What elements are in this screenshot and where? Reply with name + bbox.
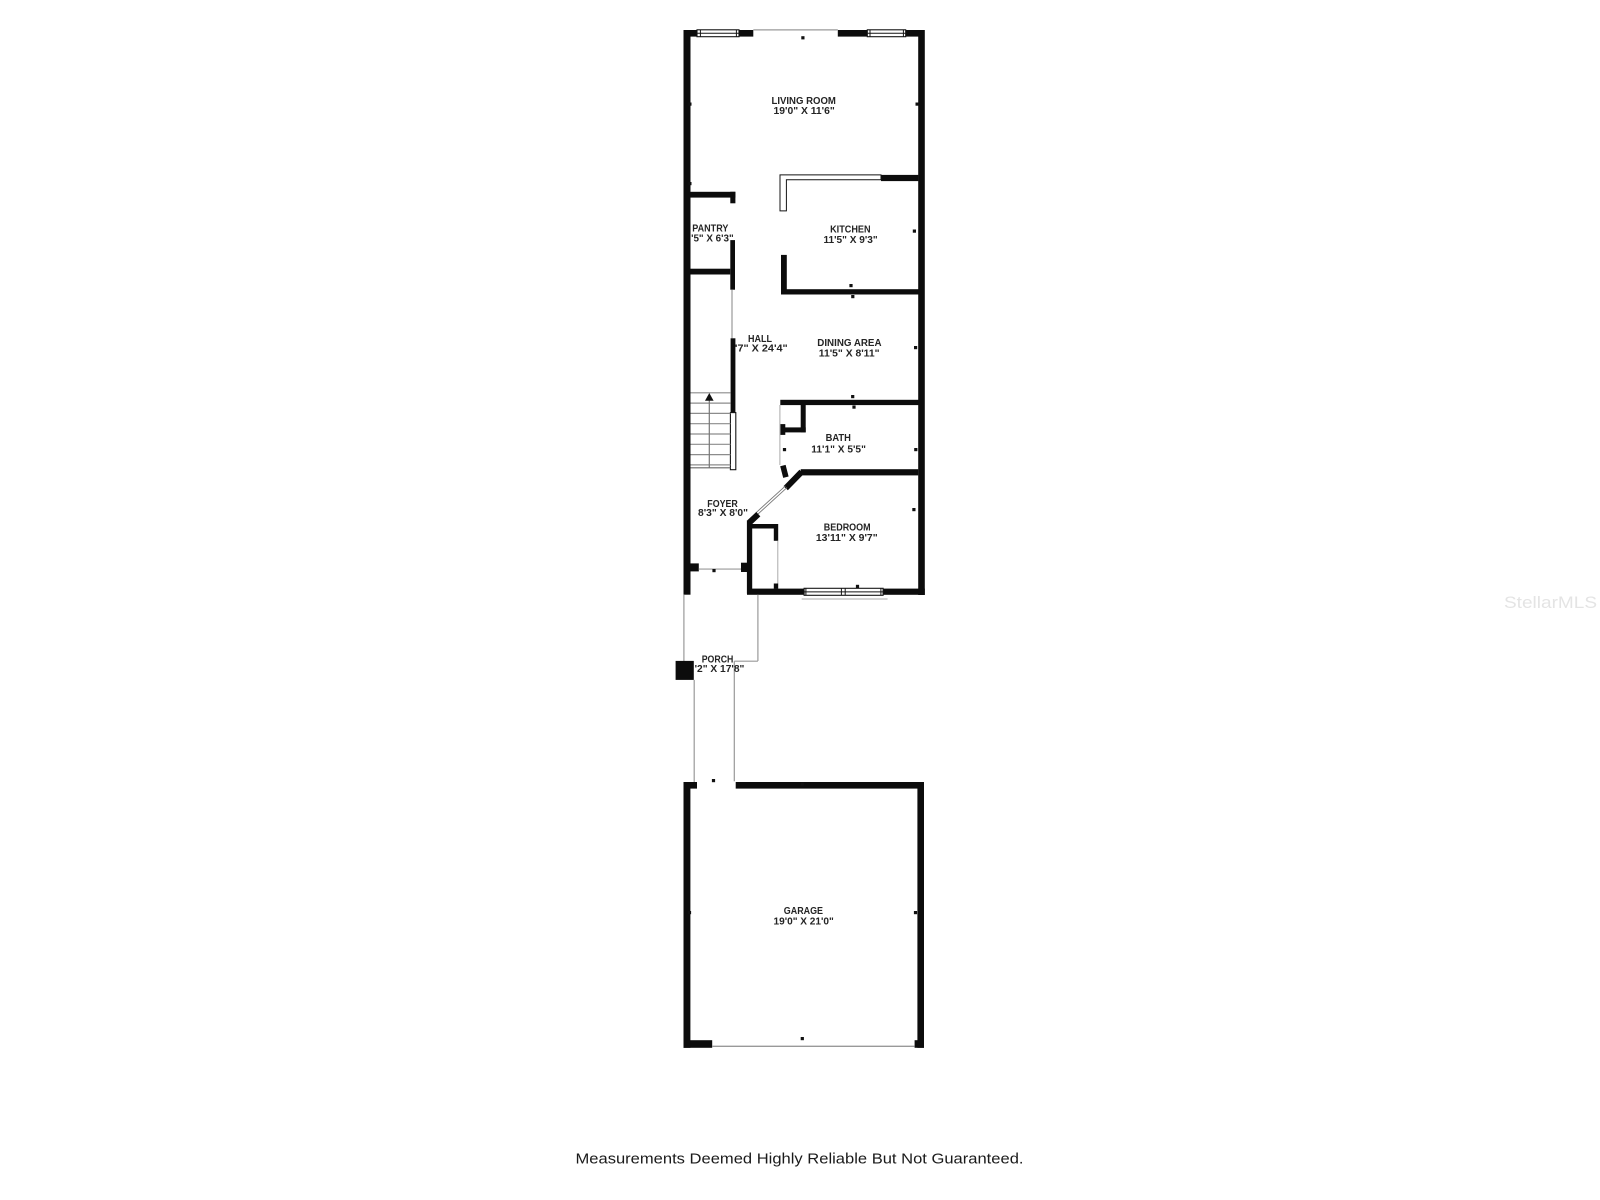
svg-text:8'3" X 8'0": 8'3" X 8'0" — [698, 508, 748, 519]
svg-text:19'0" X 21'0": 19'0" X 21'0" — [774, 916, 835, 927]
svg-text:11'1" X 5'5": 11'1" X 5'5" — [811, 444, 866, 455]
svg-text:11'5" X 9'3": 11'5" X 9'3" — [824, 235, 878, 246]
svg-text:11'5" X 8'11": 11'5" X 8'11" — [819, 348, 880, 359]
svg-text:'7" X 24'4": '7" X 24'4" — [735, 343, 788, 354]
svg-text:13'11" X 9'7": 13'11" X 9'7" — [816, 533, 878, 544]
svg-text:BATH: BATH — [826, 433, 851, 444]
svg-text:KITCHEN: KITCHEN — [830, 225, 871, 236]
svg-text:BEDROOM: BEDROOM — [824, 523, 871, 534]
svg-text:DINING AREA: DINING AREA — [817, 338, 881, 349]
svg-text:'5" X 6'3": '5" X 6'3" — [691, 233, 734, 244]
svg-text:StellarMLS: StellarMLS — [1504, 593, 1597, 612]
svg-text:Measurements Deemed Highly Rel: Measurements Deemed Highly Reliable But … — [576, 1150, 1024, 1167]
svg-text:19'0" X 11'6": 19'0" X 11'6" — [774, 106, 836, 117]
svg-text:'2" X 17'8": '2" X 17'8" — [695, 664, 745, 675]
